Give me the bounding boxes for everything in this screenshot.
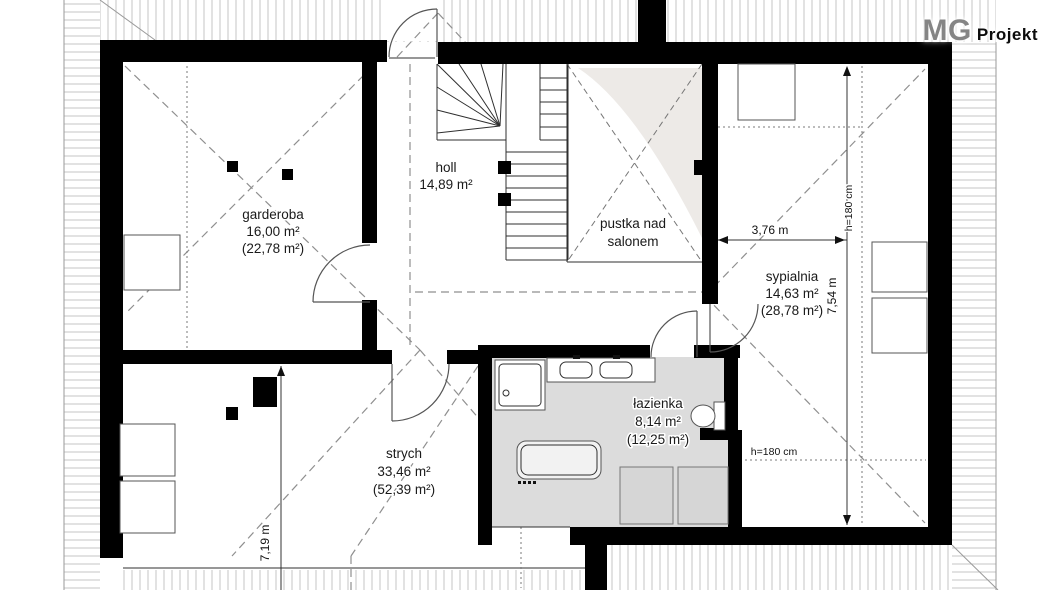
wall-garderoba-south — [100, 350, 392, 364]
shower — [495, 360, 545, 410]
svg-text:(12,25 m²): (12,25 m²) — [627, 432, 689, 447]
wall-bathroom-west — [478, 352, 492, 545]
stair-post — [498, 193, 511, 206]
svg-text:14,63 m²: 14,63 m² — [765, 286, 819, 301]
svg-text:strych: strych — [386, 446, 422, 461]
wall-right — [928, 42, 952, 545]
faucet-1 — [573, 355, 580, 359]
wall-bedroom-west — [702, 64, 718, 304]
room-label-pustka: pustka nad salonem — [600, 216, 666, 249]
svg-text:7,19 m: 7,19 m — [258, 525, 272, 562]
room-label-sypialnia: sypialnia 14,63 m² (28,78 m²) — [761, 269, 823, 318]
wall-bathroom-east-upper — [724, 358, 738, 430]
wall-tick — [694, 160, 702, 175]
svg-text:sypialnia: sypialnia — [766, 269, 819, 284]
brand-logo: MG Projekt — [923, 16, 1038, 46]
garderoba-closet — [124, 235, 180, 290]
room-label-garderoba: garderoba 16,00 m² (22,78 m²) — [242, 207, 304, 256]
brand-logo-mg: MG — [923, 16, 972, 46]
svg-text:8,14 m²: 8,14 m² — [635, 414, 681, 429]
wall-garderoba-east-lower — [362, 300, 377, 352]
room-label-strych: strych 33,46 m² (52,39 m²) — [373, 446, 435, 497]
knee-wall-label-right: h=180 cm — [843, 185, 855, 232]
svg-text:14,89 m²: 14,89 m² — [419, 177, 473, 192]
knee-wall-label-bottom: h=180 cm — [751, 446, 798, 458]
bedroom-dresser-1 — [872, 242, 927, 292]
svg-text:7,54 m: 7,54 m — [825, 278, 839, 315]
chimney-top — [638, 0, 666, 44]
svg-text:3,76 m: 3,76 m — [752, 223, 789, 237]
wall-bottom-step — [585, 545, 607, 590]
door-bathroom — [651, 311, 697, 357]
wall-bathroom-north — [478, 345, 650, 358]
dormer-opening-gap — [385, 0, 438, 41]
wall-left — [100, 40, 123, 558]
door-strych — [392, 364, 449, 421]
void-over-living-room — [567, 64, 702, 262]
faucet-2 — [613, 355, 620, 359]
svg-text:garderoba: garderoba — [242, 207, 304, 222]
svg-text:holl: holl — [435, 160, 456, 175]
floor-plan-canvas: 3,76 m 7,54 m 7,19 m h=180 cm h=180 cm g… — [0, 0, 1060, 590]
svg-text:(28,78 m²): (28,78 m²) — [761, 303, 823, 318]
wall-garderoba-east-upper — [362, 62, 377, 243]
dimension-bedroom-width: 3,76 m — [718, 223, 847, 244]
bathroom-cabinet-1 — [620, 467, 673, 524]
bathtub — [517, 441, 601, 484]
chimney-marks — [226, 161, 293, 420]
wall-top-right — [438, 42, 930, 64]
strych-closet-2 — [120, 481, 175, 533]
svg-text:łazienka: łazienka — [633, 396, 683, 411]
brand-logo-projekt: Projekt — [977, 26, 1038, 43]
stair-post — [498, 161, 511, 174]
bathroom-cabinet-2 — [678, 467, 728, 524]
room-label-lazienka: łazienka 8,14 m² (12,25 m²) — [627, 396, 689, 447]
svg-text:33,46 m²: 33,46 m² — [377, 464, 431, 479]
svg-text:salonem: salonem — [607, 234, 658, 249]
washbasin-counter — [547, 355, 655, 382]
wall-bathroom-east-lower — [728, 430, 742, 545]
svg-text:16,00 m²: 16,00 m² — [246, 224, 300, 239]
svg-text:(52,39 m²): (52,39 m²) — [373, 482, 435, 497]
dimension-bedroom-depth: 7,54 m — [825, 66, 851, 525]
floor-plan-page: 3,76 m 7,54 m 7,19 m h=180 cm h=180 cm g… — [0, 0, 1060, 590]
bedroom-wardrobe — [738, 64, 795, 120]
staircase — [437, 64, 568, 260]
svg-text:(22,78 m²): (22,78 m²) — [242, 241, 304, 256]
room-label-holl: holl 14,89 m² — [419, 160, 473, 192]
strych-closet-1 — [120, 424, 175, 476]
wall-bottom — [570, 527, 952, 545]
svg-text:pustka nad: pustka nad — [600, 216, 666, 231]
door-bedroom — [710, 304, 758, 352]
wall-top-left — [100, 40, 387, 62]
chimney-strych — [253, 377, 277, 407]
bedroom-dresser-2 — [872, 298, 927, 353]
